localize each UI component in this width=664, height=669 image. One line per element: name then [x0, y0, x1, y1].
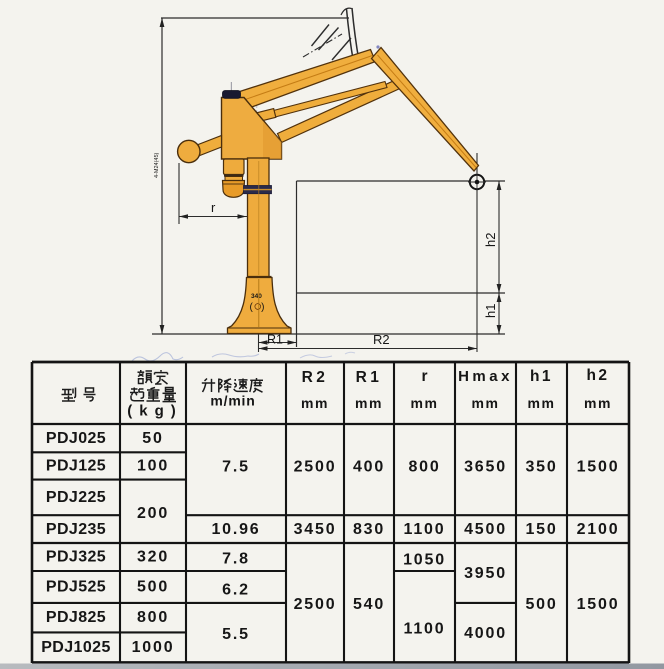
- svg-text:R2: R2: [302, 369, 329, 386]
- svg-text:( k g ): ( k g ): [127, 403, 178, 420]
- svg-text:mm: mm: [472, 395, 500, 411]
- svg-text:1000: 1000: [132, 639, 175, 656]
- svg-text:540: 540: [353, 596, 385, 613]
- svg-text:3450: 3450: [294, 521, 337, 538]
- svg-text:2100: 2100: [577, 521, 620, 538]
- svg-text:1500: 1500: [577, 596, 620, 613]
- svg-text:PDJ1025: PDJ1025: [41, 639, 111, 656]
- svg-text:4000: 4000: [464, 625, 507, 642]
- svg-text:h1: h1: [483, 304, 498, 318]
- svg-text:50: 50: [142, 430, 163, 447]
- svg-text:PDJ125: PDJ125: [46, 458, 106, 475]
- svg-text:320: 320: [137, 549, 169, 566]
- svg-text:400: 400: [353, 459, 385, 476]
- svg-text:1100: 1100: [404, 621, 446, 638]
- svg-text:6.2: 6.2: [222, 582, 250, 599]
- svg-text:500: 500: [525, 596, 557, 613]
- svg-text:1100: 1100: [404, 521, 446, 538]
- svg-text:m/min: m/min: [210, 393, 255, 409]
- svg-text:4500: 4500: [464, 521, 507, 538]
- svg-text:R2: R2: [373, 332, 390, 347]
- svg-text:mm: mm: [301, 395, 329, 411]
- svg-text:R1: R1: [356, 369, 383, 386]
- svg-text:mm: mm: [355, 395, 383, 411]
- svg-text:3950: 3950: [464, 565, 507, 582]
- svg-text:h2: h2: [483, 233, 498, 247]
- svg-text:PDJ235: PDJ235: [46, 521, 106, 538]
- svg-text:7.5: 7.5: [222, 459, 250, 476]
- svg-text:PDJ225: PDJ225: [46, 489, 106, 506]
- svg-text:200: 200: [137, 505, 169, 522]
- svg-text:1050: 1050: [403, 552, 446, 569]
- svg-text:PDJ825: PDJ825: [46, 609, 106, 626]
- svg-text:R1: R1: [267, 333, 283, 347]
- svg-text:mm: mm: [584, 395, 612, 411]
- svg-text:7.8: 7.8: [222, 551, 250, 568]
- svg-text:4-M24(45): 4-M24(45): [154, 152, 160, 178]
- svg-text:150: 150: [525, 521, 557, 538]
- svg-text:h2: h2: [586, 367, 609, 384]
- svg-text:r: r: [211, 200, 216, 215]
- svg-text:mm: mm: [528, 395, 556, 411]
- svg-text:340: 340: [251, 293, 262, 300]
- svg-text:100: 100: [137, 458, 169, 475]
- svg-text:PDJ325: PDJ325: [46, 549, 106, 566]
- svg-text:10.96: 10.96: [211, 521, 260, 538]
- svg-text:Hmax: Hmax: [458, 368, 513, 385]
- svg-text:800: 800: [408, 459, 440, 476]
- svg-text:h1: h1: [530, 368, 553, 385]
- svg-text:1500: 1500: [577, 459, 620, 476]
- svg-text:350: 350: [525, 459, 557, 476]
- svg-text:PDJ025: PDJ025: [46, 430, 106, 447]
- svg-text:800: 800: [137, 609, 169, 626]
- svg-text:mm: mm: [411, 395, 439, 411]
- svg-text:r: r: [421, 368, 427, 385]
- svg-text:830: 830: [353, 521, 385, 538]
- svg-text:500: 500: [137, 579, 169, 596]
- svg-text:PDJ525: PDJ525: [46, 579, 106, 596]
- svg-text:2500: 2500: [294, 459, 337, 476]
- svg-text:5.5: 5.5: [222, 626, 250, 643]
- svg-text:2500: 2500: [294, 596, 337, 613]
- svg-text:3650: 3650: [464, 459, 507, 476]
